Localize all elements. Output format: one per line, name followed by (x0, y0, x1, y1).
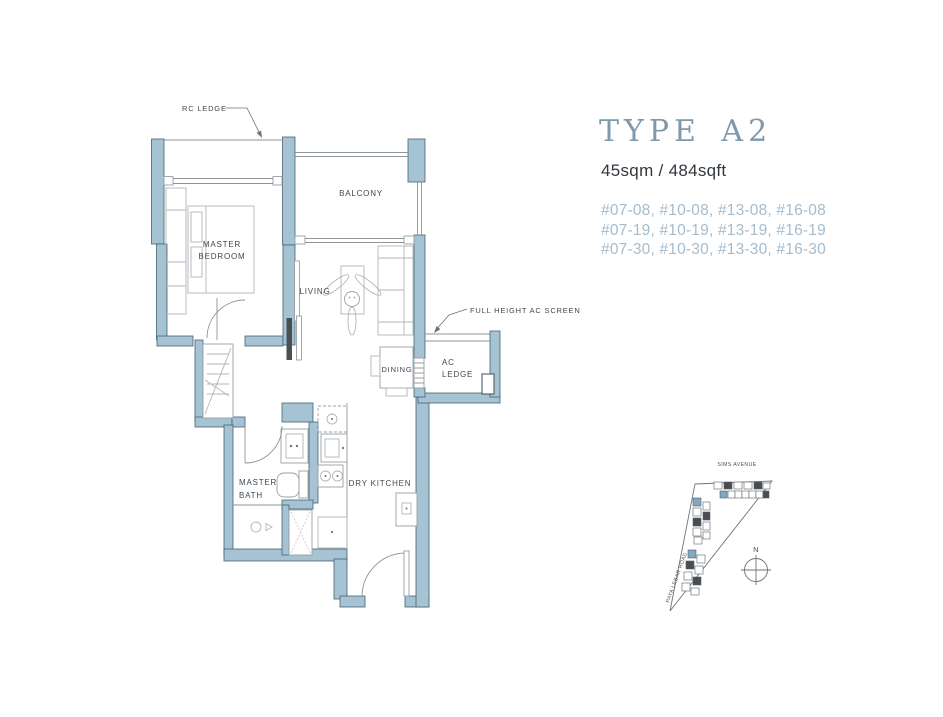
room-label-master-bedroom-line2: BEDROOM (199, 252, 246, 261)
entry-door-swing (362, 551, 409, 596)
unit-stack-row: #07-08, #10-08, #13-08, #16-08 (601, 201, 826, 221)
callout-rc-ledge: RC LEDGE (182, 104, 227, 113)
site-map-buildings-left (693, 498, 710, 544)
room-label-balcony: BALCONY (339, 189, 383, 198)
room-label-living: LIVING (299, 287, 330, 296)
ceiling-fan-icon (321, 266, 383, 335)
shower-icon (251, 522, 272, 532)
shower-screen-cubicle (289, 510, 312, 555)
sofa (378, 246, 413, 335)
ac-screen-callout (434, 309, 467, 333)
room-label-master-bedroom-line1: MASTER (203, 240, 241, 249)
toilet-icon (277, 471, 308, 498)
bed (188, 206, 254, 293)
fridge-icon (396, 493, 417, 526)
room-label-ac-ledge-line1: AC (442, 358, 455, 367)
unit-area: 45sqm / 484sqft (601, 161, 726, 180)
bedroom-wardrobe (166, 188, 186, 314)
room-label-master-bath-line1: MASTER (239, 478, 277, 487)
kitchen-cabinet (318, 517, 347, 548)
room-label-dry-kitchen: DRY KITCHEN (349, 479, 412, 488)
ac-ledge-notch (482, 374, 494, 394)
unit-stack-list: #07-08, #10-08, #13-08, #16-08 #07-19, #… (601, 201, 826, 260)
unit-stack-row: #07-30, #10-30, #13-30, #16-30 (601, 240, 826, 260)
floor-plan-svg: RC LEDGE MASTER BEDROOM BALCONY LIVING D… (0, 0, 943, 717)
north-label: N (753, 545, 759, 554)
unit-stack-row: #07-19, #10-19, #13-19, #16-19 (601, 221, 826, 241)
callout-full-height-ac-screen: FULL HEIGHT AC SCREEN (470, 306, 581, 315)
hob-icon (318, 465, 343, 487)
unit-type-title: TYPE A2 (599, 116, 772, 148)
room-label-dining: DINING (381, 365, 412, 374)
room-label-ac-ledge-line2: LEDGE (442, 370, 473, 379)
washer-provision-icon (318, 406, 347, 432)
corridor-wardrobe (203, 344, 233, 418)
louver-vent-icon (414, 358, 424, 388)
north-compass-icon: N (741, 545, 771, 585)
brochure-page: RC LEDGE MASTER BEDROOM BALCONY LIVING D… (0, 0, 943, 717)
site-map-buildings-top (714, 482, 770, 498)
site-map-street-top: SIMS AVENUE (717, 462, 756, 468)
rc-ledge-callout (226, 108, 262, 138)
kitchen-sink-icon (321, 434, 347, 462)
site-map: SIMS AVENUE PAYA LEBAR ROAD (665, 462, 772, 611)
room-label-master-bath-line2: BATH (239, 491, 263, 500)
bath-door-swing (245, 426, 282, 463)
bath-vanity-sink-icon (281, 429, 308, 463)
bedroom-door-swing (207, 298, 245, 340)
